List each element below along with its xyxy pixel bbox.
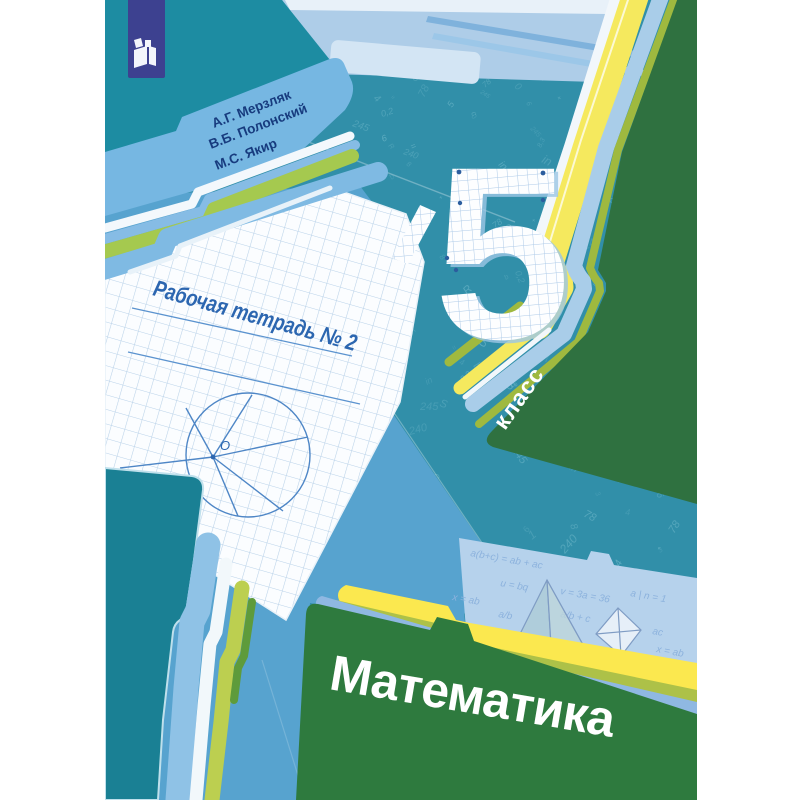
svg-text:4: 4 [625,507,631,517]
svg-text:245: 245 [419,401,439,413]
svg-text:ac: ac [651,626,663,639]
svg-text:O: O [220,438,230,453]
